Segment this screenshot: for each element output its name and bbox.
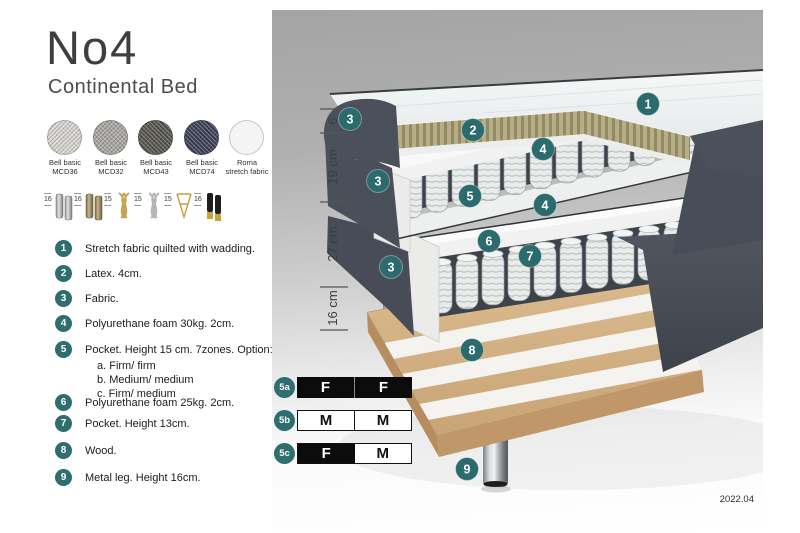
- firmness-bar: F M: [297, 443, 412, 464]
- callout-3-topper: 3: [339, 108, 362, 131]
- fabric-swatch[interactable]: [47, 120, 82, 155]
- dimension-label: 27 cm: [325, 226, 340, 261]
- callout-4-lower: 4: [534, 194, 557, 217]
- part-description: Fabric.: [85, 293, 275, 306]
- leg-option[interactable]: 15: [164, 189, 194, 229]
- callout-3-base: 3: [380, 256, 403, 279]
- part-number-badge: 6: [55, 394, 72, 411]
- callout-6: 6: [478, 230, 501, 253]
- fabric-swatch[interactable]: [184, 120, 219, 155]
- svg-text:4: 4: [542, 199, 549, 213]
- callout-3-mattress: 3: [367, 170, 390, 193]
- leg-option[interactable]: 15: [104, 189, 134, 229]
- part-description: Wood.: [85, 445, 275, 458]
- part-option: a. Firm/ firm: [97, 359, 277, 374]
- page: No4 Continental Bed Bell basicMCD36 Bell…: [0, 0, 800, 533]
- part-description: Polyurethane foam 25kg. 2cm.: [85, 397, 275, 410]
- part-number-badge: 4: [55, 315, 72, 332]
- fabric-swatch-label: Bell basicMCD43: [131, 159, 181, 176]
- part-description: Polyurethane foam 30kg. 2cm.: [85, 318, 275, 331]
- part-description: Pocket. Height 13cm.: [85, 418, 275, 431]
- part-number-badge: 2: [55, 265, 72, 282]
- callout-1: 1: [637, 93, 660, 116]
- svg-text:3: 3: [347, 113, 354, 127]
- part-description: Latex. 4cm.: [85, 268, 275, 281]
- part-number-badge: 1: [55, 240, 72, 257]
- leg-option[interactable]: 15: [134, 189, 164, 229]
- fabric-swatch-label: Bell basicMCD74: [177, 159, 227, 176]
- firmness-bar: M M: [297, 410, 412, 431]
- twist-leg-silver-icon: [144, 191, 164, 226]
- fabric-swatch[interactable]: [93, 120, 128, 155]
- svg-text:8: 8: [469, 344, 476, 358]
- page-subtitle: Continental Bed: [48, 76, 198, 99]
- leg-option[interactable]: 16: [74, 189, 104, 229]
- part-number-badge: 8: [55, 442, 72, 459]
- fabric-swatch[interactable]: [229, 120, 264, 155]
- svg-text:3: 3: [375, 175, 382, 189]
- callout-2: 2: [462, 119, 485, 142]
- callout-9: 9: [456, 458, 479, 481]
- cylinder-legs-silver-icon: [54, 191, 74, 226]
- svg-text:2: 2: [470, 124, 477, 138]
- svg-text:5: 5: [467, 190, 474, 204]
- cylinder-legs-bronze-icon: [84, 191, 104, 226]
- dimension-label: 6: [325, 117, 340, 124]
- svg-text:6: 6: [486, 235, 493, 249]
- cylinder-legs-black-gold-icon: [204, 191, 224, 226]
- firmness-option-5b: 5b M M: [272, 410, 432, 431]
- firmness-option-5c: 5c F M: [272, 443, 432, 464]
- firmness-badge: 5b: [274, 410, 295, 431]
- firmness-badge: 5c: [274, 443, 295, 464]
- part-number-badge: 3: [55, 290, 72, 307]
- part-number-badge: 9: [55, 469, 72, 486]
- twist-leg-gold-icon: [114, 191, 134, 226]
- fabric-swatch-label: Bell basicMCD36: [40, 159, 90, 176]
- firmness-option-5a: 5a F F: [272, 377, 432, 398]
- callout-8: 8: [461, 339, 484, 362]
- callout-7: 7: [519, 245, 542, 268]
- version-label: 2022.04: [720, 494, 754, 505]
- part-option: b. Medium/ medium: [97, 373, 277, 388]
- part-description: Stretch fabric quilted with wadding.: [85, 243, 275, 256]
- fabric-swatch-label: Bell basicMCD32: [86, 159, 136, 176]
- callout-5: 5: [459, 185, 482, 208]
- svg-text:9: 9: [464, 463, 471, 477]
- svg-text:3: 3: [388, 261, 395, 275]
- dimension-label: 19 cm: [325, 149, 340, 184]
- svg-text:1: 1: [645, 98, 652, 112]
- fabric-swatch[interactable]: [138, 120, 173, 155]
- part-description: Metal leg. Height 16cm.: [85, 472, 275, 485]
- callout-4-upper: 4: [532, 138, 555, 161]
- part-description: Pocket. Height 15 cm. 7zones. Option:: [85, 344, 275, 357]
- hairpin-leg-gold-icon: [174, 191, 194, 226]
- svg-text:7: 7: [527, 250, 534, 264]
- part-number-badge: 7: [55, 415, 72, 432]
- svg-text:4: 4: [540, 143, 547, 157]
- firmness-bar: F F: [297, 377, 412, 398]
- firmness-badge: 5a: [274, 377, 295, 398]
- page-title: No4: [46, 20, 138, 75]
- part-number-badge: 5: [55, 341, 72, 358]
- illustration-panel: 6 19 cm 27 cm 16 cm 1 2 3 3 3 4 4 5 6 7 …: [272, 10, 763, 533]
- dimension-label: 16 cm: [325, 290, 340, 325]
- leg-option[interactable]: 16: [44, 189, 74, 229]
- leg-option[interactable]: 16: [194, 189, 224, 229]
- fabric-swatch-label: Romastretch fabric: [222, 159, 272, 176]
